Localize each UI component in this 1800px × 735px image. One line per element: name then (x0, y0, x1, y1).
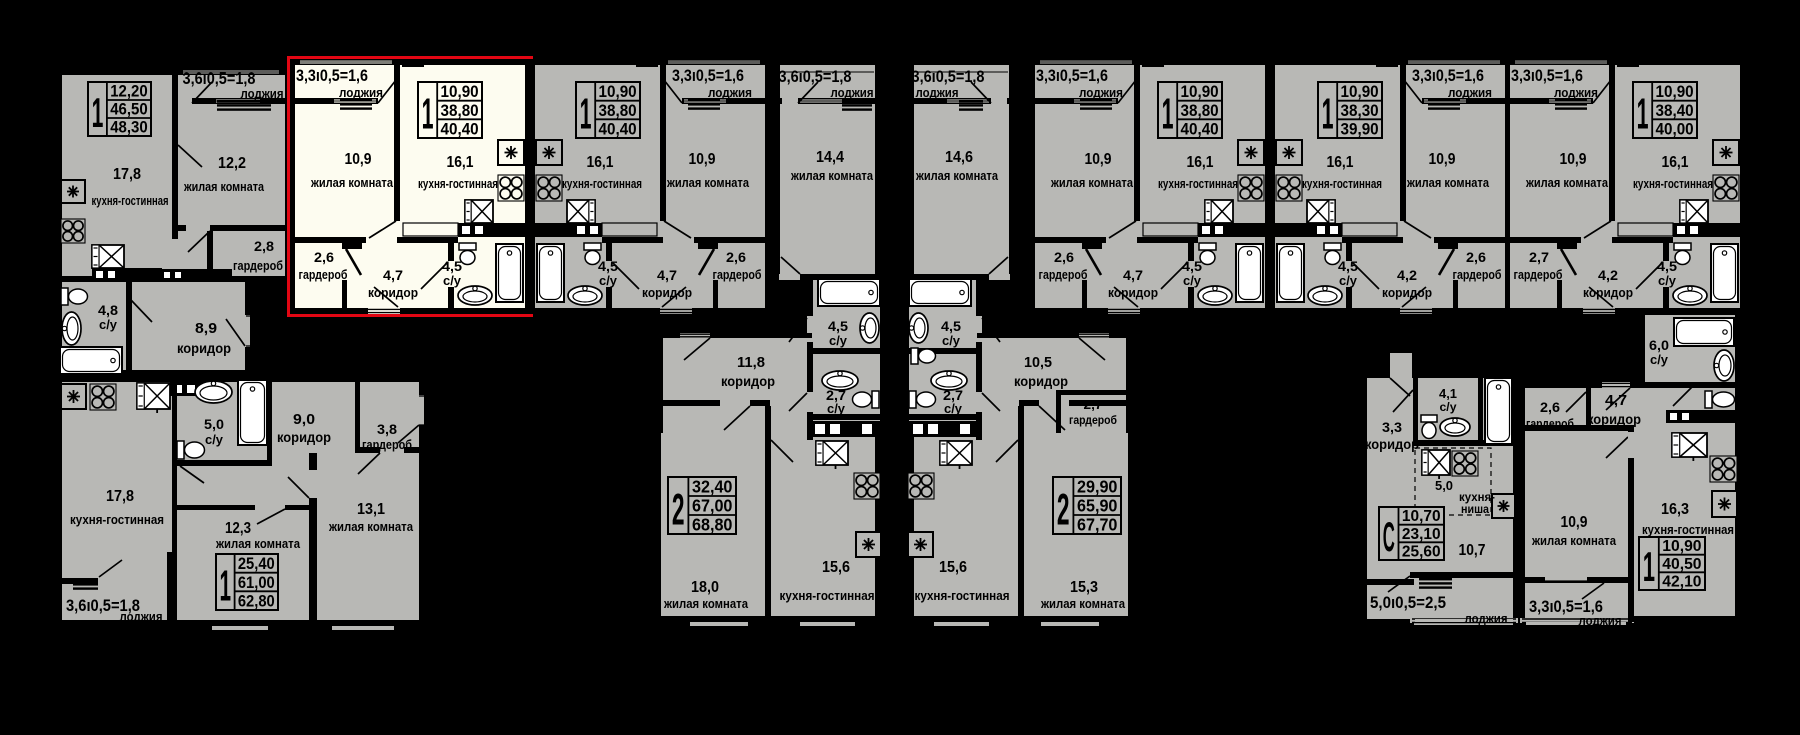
svg-text:40,00: 40,00 (1656, 120, 1694, 139)
svg-text:1: 1 (1162, 89, 1174, 138)
svg-text:кухня-гостинная: кухня-гостинная (418, 177, 498, 191)
svg-text:10,9: 10,9 (345, 151, 372, 168)
svg-text:коридор: коридор (1014, 374, 1068, 389)
svg-text:25,60: 25,60 (1402, 544, 1441, 561)
svg-text:с/у: с/у (599, 274, 617, 288)
svg-text:10,9: 10,9 (689, 151, 716, 168)
svg-text:5,0: 5,0 (1435, 478, 1453, 493)
svg-text:коридор: коридор (1587, 412, 1641, 427)
svg-text:4,2: 4,2 (1598, 267, 1618, 283)
svg-text:3,8: 3,8 (377, 421, 397, 437)
svg-text:кухня-гостинная: кухня-гостинная (1633, 177, 1713, 191)
svg-text:гардероб: гардероб (1069, 413, 1117, 427)
svg-text:гардероб: гардероб (233, 259, 283, 273)
svg-text:2,6: 2,6 (726, 249, 746, 265)
svg-text:4,5: 4,5 (1657, 258, 1677, 274)
svg-text:65,90: 65,90 (1077, 497, 1117, 516)
svg-text:с/у: с/у (829, 334, 847, 348)
svg-text:с/у: с/у (1183, 274, 1201, 288)
svg-text:лоджия: лоджия (120, 609, 163, 624)
svg-text:4,5: 4,5 (598, 258, 618, 274)
svg-text:1: 1 (1637, 89, 1649, 138)
svg-text:кухня-гостинная: кухня-гостинная (562, 177, 642, 191)
svg-text:48,30: 48,30 (110, 119, 147, 137)
svg-text:10,90: 10,90 (1341, 82, 1379, 101)
svg-text:16,1: 16,1 (1662, 154, 1689, 171)
svg-text:с/у: с/у (1440, 400, 1457, 414)
svg-text:11,8: 11,8 (737, 354, 765, 371)
svg-text:жилая комната: жилая комната (915, 168, 999, 183)
svg-text:12,2: 12,2 (218, 155, 246, 172)
svg-text:18,0: 18,0 (691, 579, 719, 596)
svg-text:2,6: 2,6 (1540, 399, 1560, 415)
svg-text:с/у: с/у (944, 402, 962, 416)
svg-text:14,4: 14,4 (816, 149, 844, 166)
svg-text:10,90: 10,90 (1656, 82, 1694, 101)
svg-text:13,1: 13,1 (357, 501, 385, 518)
svg-text:4,7: 4,7 (1605, 392, 1627, 409)
svg-text:2: 2 (672, 485, 685, 534)
svg-text:1: 1 (422, 89, 434, 138)
svg-text:8,9: 8,9 (195, 320, 217, 337)
svg-text:38,80: 38,80 (599, 101, 637, 120)
svg-text:1: 1 (92, 89, 104, 136)
svg-text:лоджия: лоджия (1465, 611, 1508, 626)
svg-text:10,7: 10,7 (1459, 542, 1486, 559)
svg-text:кухня-гостинная: кухня-гостинная (70, 513, 164, 527)
svg-text:коридор: коридор (642, 285, 692, 300)
svg-text:4,5: 4,5 (1338, 258, 1358, 274)
svg-text:кухня-гостинная: кухня-гостинная (1642, 523, 1734, 537)
svg-text:2: 2 (1057, 485, 1070, 534)
svg-text:1: 1 (580, 89, 592, 138)
svg-text:жилая комната: жилая комната (183, 179, 264, 194)
svg-text:6,0: 6,0 (1649, 337, 1669, 353)
svg-text:4,8: 4,8 (98, 302, 118, 318)
svg-text:4,7: 4,7 (383, 267, 403, 283)
svg-text:4,1: 4,1 (1439, 386, 1457, 401)
svg-text:10,5: 10,5 (1024, 354, 1052, 371)
svg-text:лоджия: лоджия (1554, 85, 1598, 100)
svg-text:коридор: коридор (277, 430, 331, 445)
svg-text:2,6: 2,6 (1466, 249, 1486, 265)
svg-text:38,80: 38,80 (441, 101, 479, 120)
svg-text:23,10: 23,10 (1402, 526, 1441, 543)
svg-text:ниша: ниша (1461, 504, 1490, 516)
svg-text:коридор: коридор (368, 285, 418, 300)
svg-text:16,1: 16,1 (1187, 154, 1214, 171)
svg-text:15,6: 15,6 (939, 559, 967, 576)
svg-text:40,40: 40,40 (599, 120, 637, 139)
svg-text:38,30: 38,30 (1341, 101, 1379, 120)
svg-text:17,8: 17,8 (113, 166, 141, 183)
svg-text:жилая комната: жилая комната (663, 596, 749, 611)
svg-text:жилая комната: жилая комната (215, 537, 301, 551)
svg-text:жилая комната: жилая комната (310, 175, 394, 190)
svg-text:29,90: 29,90 (1077, 478, 1117, 497)
svg-text:с/у: с/у (1658, 274, 1676, 288)
svg-text:3,3ı0,5=1,6: 3,3ı0,5=1,6 (1036, 67, 1108, 85)
svg-text:кухня-гостинная: кухня-гостинная (1158, 177, 1238, 191)
svg-text:4,5: 4,5 (442, 258, 462, 274)
svg-text:2,7: 2,7 (943, 387, 963, 403)
svg-text:46,50: 46,50 (110, 101, 147, 119)
svg-text:с/у: с/у (827, 402, 845, 416)
svg-text:4,7: 4,7 (1123, 267, 1143, 283)
svg-text:гардероб: гардероб (299, 268, 348, 282)
svg-text:коридор: коридор (1583, 285, 1633, 300)
svg-text:коридор: коридор (1382, 285, 1432, 300)
svg-text:10,90: 10,90 (599, 82, 637, 101)
svg-text:коридор: коридор (1365, 437, 1419, 452)
svg-text:2,8: 2,8 (254, 238, 274, 254)
svg-text:68,80: 68,80 (692, 516, 732, 535)
svg-text:61,00: 61,00 (238, 573, 275, 592)
svg-text:2,6: 2,6 (1054, 249, 1074, 265)
svg-text:9,0: 9,0 (293, 411, 315, 428)
svg-text:лоджия: лоджия (916, 85, 959, 100)
svg-text:1: 1 (1322, 89, 1334, 138)
svg-text:1: 1 (1643, 544, 1655, 590)
svg-text:3,6ı0,5=1,8: 3,6ı0,5=1,8 (779, 68, 852, 86)
svg-text:гардероб: гардероб (713, 268, 762, 282)
svg-text:с/у: с/у (205, 433, 223, 447)
svg-text:кухня-гостинная: кухня-гостинная (780, 589, 875, 603)
svg-text:10,9: 10,9 (1429, 151, 1456, 168)
svg-text:16,1: 16,1 (447, 154, 474, 171)
svg-text:10,9: 10,9 (1085, 151, 1112, 168)
svg-text:с/у: с/у (1339, 274, 1357, 288)
svg-text:лоджия: лоджия (831, 85, 874, 100)
svg-text:25,40: 25,40 (238, 554, 275, 573)
svg-text:3,3ı0,5=1,6: 3,3ı0,5=1,6 (296, 67, 368, 85)
svg-text:16,1: 16,1 (587, 154, 614, 171)
svg-text:67,00: 67,00 (692, 497, 732, 516)
svg-text:гардероб: гардероб (1039, 268, 1088, 282)
svg-text:жилая комната: жилая комната (1531, 534, 1617, 548)
svg-text:10,90: 10,90 (1181, 82, 1219, 101)
svg-text:4,5: 4,5 (828, 318, 848, 334)
svg-text:с/у: с/у (942, 334, 960, 348)
svg-text:15,3: 15,3 (1070, 579, 1098, 596)
svg-text:жилая комната: жилая комната (666, 175, 750, 190)
svg-text:67,70: 67,70 (1077, 516, 1117, 535)
svg-text:4,5: 4,5 (1182, 258, 1202, 274)
svg-text:гардероб: гардероб (1514, 268, 1563, 282)
svg-text:3,6ı0,5=1,8: 3,6ı0,5=1,8 (912, 68, 985, 86)
svg-text:14,6: 14,6 (945, 149, 973, 166)
svg-text:17,8: 17,8 (106, 488, 134, 505)
svg-text:4,2: 4,2 (1397, 267, 1417, 283)
svg-text:3,3: 3,3 (1382, 419, 1402, 435)
svg-text:с/у: с/у (99, 318, 117, 332)
svg-text:39,90: 39,90 (1341, 120, 1379, 139)
svg-text:С: С (1383, 514, 1395, 560)
svg-text:10,9: 10,9 (1561, 514, 1588, 531)
svg-text:12,3: 12,3 (225, 520, 251, 537)
svg-text:кухня-гостинная: кухня-гостинная (92, 194, 169, 208)
svg-text:2,7: 2,7 (1529, 249, 1549, 265)
svg-text:лоджия: лоджия (339, 85, 383, 100)
svg-text:4,5: 4,5 (941, 318, 961, 334)
svg-text:62,80: 62,80 (238, 592, 275, 611)
svg-text:10,70: 10,70 (1402, 508, 1441, 525)
svg-text:2,6: 2,6 (314, 249, 334, 265)
svg-text:16,3: 16,3 (1661, 501, 1689, 518)
svg-text:40,40: 40,40 (441, 120, 479, 139)
svg-text:2,7: 2,7 (1084, 397, 1103, 412)
svg-text:гардероб: гардероб (1453, 268, 1502, 282)
svg-text:лоджия: лоджия (1579, 613, 1622, 628)
svg-text:лоджия: лоджия (1079, 85, 1123, 100)
svg-text:жилая комната: жилая комната (1050, 175, 1134, 190)
svg-text:жилая комната: жилая комната (1525, 175, 1609, 190)
svg-text:кухня-гостинная: кухня-гостинная (1302, 177, 1382, 191)
svg-text:3,3ı0,5=1,6: 3,3ı0,5=1,6 (1511, 67, 1583, 85)
svg-text:с/у: с/у (443, 274, 461, 288)
svg-text:12,20: 12,20 (110, 83, 147, 101)
svg-text:3,3ı0,5=1,6: 3,3ı0,5=1,6 (1412, 67, 1484, 85)
svg-text:коридор: коридор (721, 374, 775, 389)
svg-text:гардероб: гардероб (362, 438, 412, 452)
svg-text:38,40: 38,40 (1656, 101, 1694, 120)
svg-text:жилая комната: жилая комната (1040, 596, 1126, 611)
svg-text:15,6: 15,6 (822, 559, 850, 576)
svg-text:жилая комната: жилая комната (328, 520, 414, 534)
svg-text:32,40: 32,40 (692, 478, 732, 497)
svg-text:жилая комната: жилая комната (790, 168, 874, 183)
svg-text:коридор: коридор (1108, 285, 1158, 300)
svg-text:кухня-гостинная: кухня-гостинная (915, 589, 1010, 603)
svg-text:коридор: коридор (177, 341, 231, 356)
svg-text:3,3ı0,5=1,6: 3,3ı0,5=1,6 (672, 67, 744, 85)
svg-text:10,9: 10,9 (1560, 151, 1587, 168)
svg-text:кухня-: кухня- (1459, 492, 1495, 504)
svg-text:лоджия: лоджия (1448, 85, 1492, 100)
svg-text:10,90: 10,90 (441, 82, 479, 101)
svg-text:40,40: 40,40 (1181, 120, 1219, 139)
svg-text:38,80: 38,80 (1181, 101, 1219, 120)
svg-text:40,50: 40,50 (1662, 556, 1701, 573)
svg-text:5,0: 5,0 (204, 416, 224, 432)
svg-text:16,1: 16,1 (1327, 154, 1354, 171)
svg-text:лоджия: лоджия (708, 85, 752, 100)
svg-text:жилая комната: жилая комната (1406, 175, 1490, 190)
svg-text:42,10: 42,10 (1662, 574, 1701, 591)
svg-text:10,90: 10,90 (1662, 538, 1701, 555)
svg-text:1: 1 (220, 561, 232, 610)
svg-text:5,0ı0,5=2,5: 5,0ı0,5=2,5 (1370, 594, 1446, 612)
svg-text:с/у: с/у (1650, 353, 1668, 367)
svg-text:лоджия: лоджия (241, 86, 284, 101)
svg-text:4,7: 4,7 (657, 267, 677, 283)
svg-text:2,7: 2,7 (826, 387, 846, 403)
svg-text:гардероб: гардероб (1526, 417, 1574, 431)
